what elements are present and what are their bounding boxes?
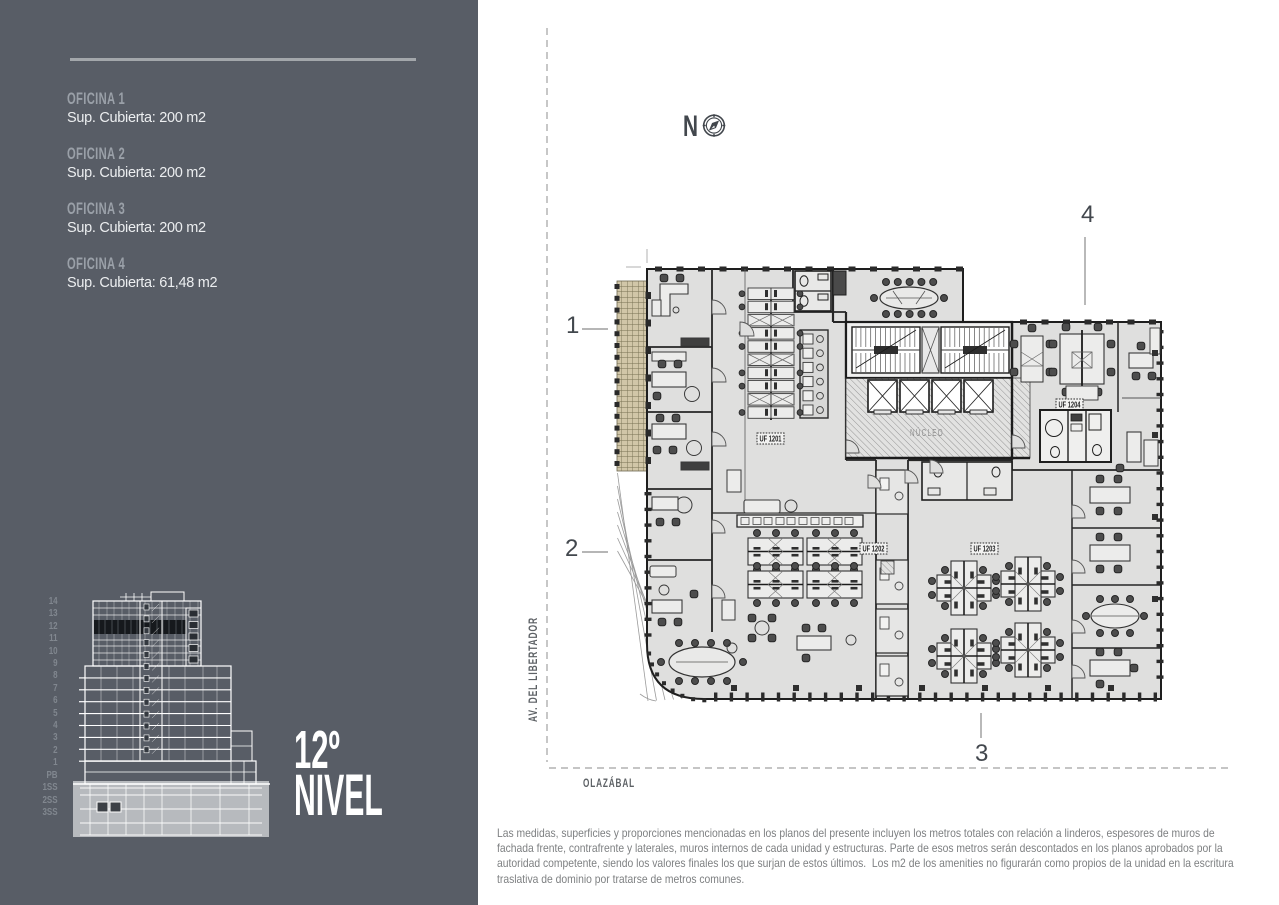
svg-text:3: 3: [975, 740, 988, 767]
svg-text:UF 1202: UF 1202: [863, 545, 885, 554]
svg-text:UF 1201: UF 1201: [760, 435, 782, 444]
svg-text:4: 4: [1081, 201, 1094, 228]
svg-text:OLAZÁBAL: OLAZÁBAL: [583, 777, 635, 790]
svg-text:1: 1: [566, 312, 579, 339]
svg-text:NÚCLEO: NÚCLEO: [910, 426, 944, 439]
svg-text:AV. DEL LIBERTADOR: AV. DEL LIBERTADOR: [528, 617, 540, 722]
svg-text:2: 2: [565, 535, 578, 562]
svg-text:UF 1204: UF 1204: [1059, 401, 1081, 410]
svg-text:UF 1203: UF 1203: [974, 545, 996, 554]
svg-text:N: N: [683, 110, 698, 143]
